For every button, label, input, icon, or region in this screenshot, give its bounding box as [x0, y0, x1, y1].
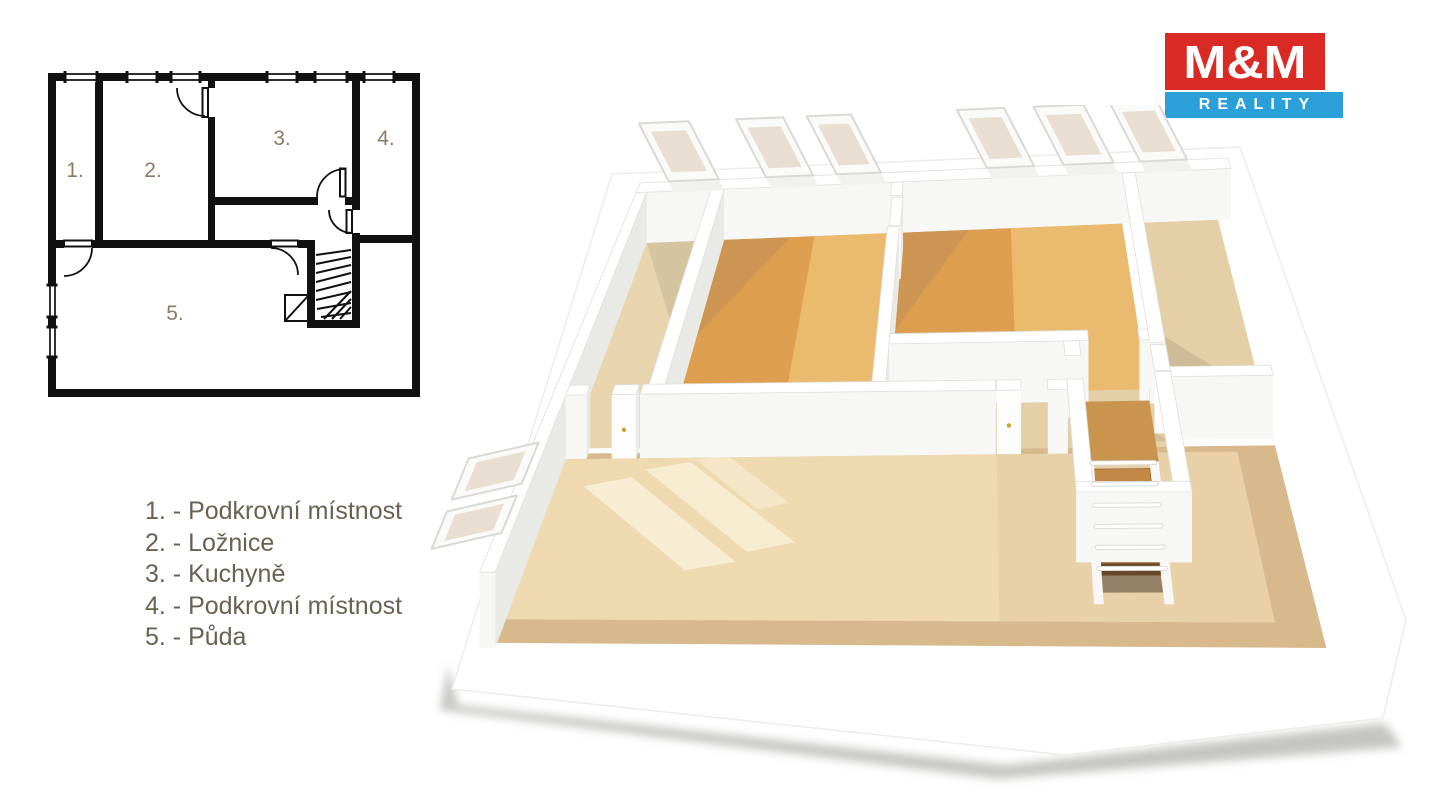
wall-attic-c-face [1048, 390, 1068, 454]
wall-attic-b-face [640, 390, 996, 458]
floorplan-2d: 1. 2. 3. 4. 5. [40, 55, 430, 405]
door-handle [622, 428, 626, 432]
legend-item-2: 2. - Ložnice [145, 528, 402, 560]
plan-room-label-1: 1. [66, 159, 84, 182]
door-room2 [889, 197, 903, 226]
stair-door-jamb [1064, 341, 1081, 356]
plan-wall-room1 [95, 81, 103, 240]
door-attic-right [997, 380, 1022, 391]
door-attic-left-side [636, 384, 639, 458]
page: { "logo": { "top": "M&M", "bottom": "REA… [0, 0, 1440, 810]
plan-wall-attic [92, 240, 271, 248]
door-attic-right-face [997, 390, 1021, 454]
wall-attic-c [1047, 379, 1068, 390]
wall-room2-room3-a [891, 182, 904, 196]
floorplan-3d [430, 105, 1430, 805]
legend-item-3: 3. - Kuchyně [145, 559, 402, 591]
wall-room3-corridor-b [1138, 329, 1150, 340]
wall-room4-bottom-face [1172, 375, 1274, 440]
iso-rail [1092, 463, 1154, 464]
west-wall-face [480, 572, 496, 648]
plan-room-label-5: 5. [166, 302, 184, 325]
wall-attic-a [566, 385, 591, 395]
plan-room-label-2: 2. [144, 159, 162, 182]
logo-top-band: M&M [1165, 33, 1325, 90]
logo-mm-text: M&M [1183, 35, 1306, 89]
plan-wall-room4 [352, 81, 360, 210]
wall-room4-bottom [1170, 365, 1274, 377]
door-attic-left [612, 384, 640, 394]
legend-item-1: 1. - Podkrovní místnost [145, 496, 402, 528]
legend-item-5: 5. - Půda [145, 622, 402, 654]
door-attic-left-face [612, 394, 637, 458]
door-handle [1007, 423, 1011, 427]
plan-walls [48, 73, 420, 397]
plan-wall-room2 [208, 117, 215, 248]
stair-landing [1079, 401, 1158, 463]
room-legend: 1. - Podkrovní místnost 2. - Ložnice 3. … [145, 496, 402, 654]
legend-item-4: 4. - Podkrovní místnost [145, 591, 402, 623]
wall-attic-a-side [587, 385, 591, 459]
wall-attic-a-face [566, 395, 587, 459]
plan-wall-room3 [215, 197, 318, 205]
plan-room-label-4: 4. [377, 127, 395, 150]
plan-room-label-3: 3. [273, 127, 291, 150]
wall-room3-corridor-b-face [1139, 340, 1149, 401]
